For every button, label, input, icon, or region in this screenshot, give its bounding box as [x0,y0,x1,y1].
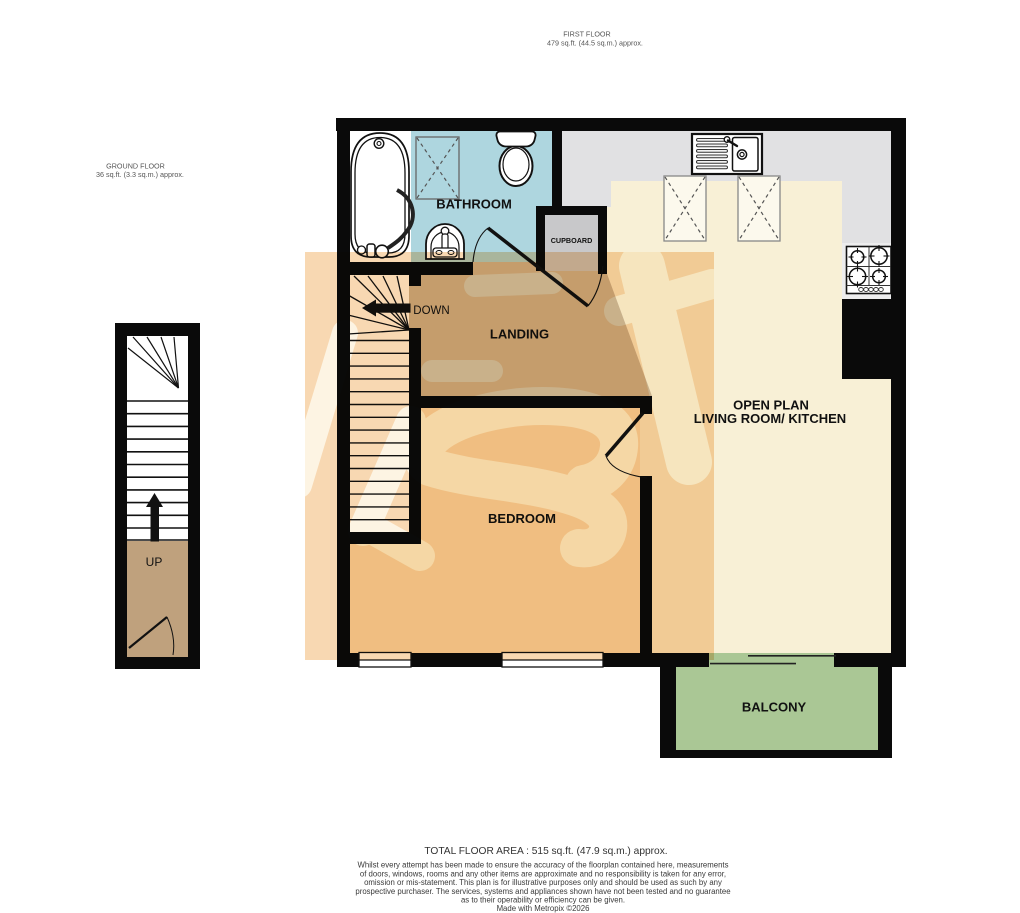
svg-text:Whilst every attempt has been: Whilst every attempt has been made to en… [358,861,729,870]
svg-text:of doors, windows, rooms and a: of doors, windows, rooms and any other i… [360,869,726,878]
svg-text:CUPBOARD: CUPBOARD [551,236,593,245]
svg-text:omission or mis-statement. Thi: omission or mis-statement. This plan is … [364,878,722,887]
svg-text:36 sq.ft. (3.3 sq.m.) approx.: 36 sq.ft. (3.3 sq.m.) approx. [96,170,184,179]
svg-text:prospective purchaser. The ser: prospective purchaser. The services, sys… [355,887,730,896]
svg-text:UP: UP [146,555,163,569]
svg-text:FIRST FLOOR: FIRST FLOOR [563,30,610,39]
svg-text:LIVING ROOM/ KITCHEN: LIVING ROOM/ KITCHEN [694,411,846,426]
svg-text:BATHROOM: BATHROOM [436,197,512,212]
svg-text:Made with Metropix ©2026: Made with Metropix ©2026 [497,904,590,913]
svg-text:479 sq.ft. (44.5 sq.m.) approx: 479 sq.ft. (44.5 sq.m.) approx. [547,39,643,48]
svg-text:BALCONY: BALCONY [742,700,807,715]
svg-text:TOTAL FLOOR AREA : 515 sq.ft.: TOTAL FLOOR AREA : 515 sq.ft. (47.9 sq.m… [424,846,667,857]
